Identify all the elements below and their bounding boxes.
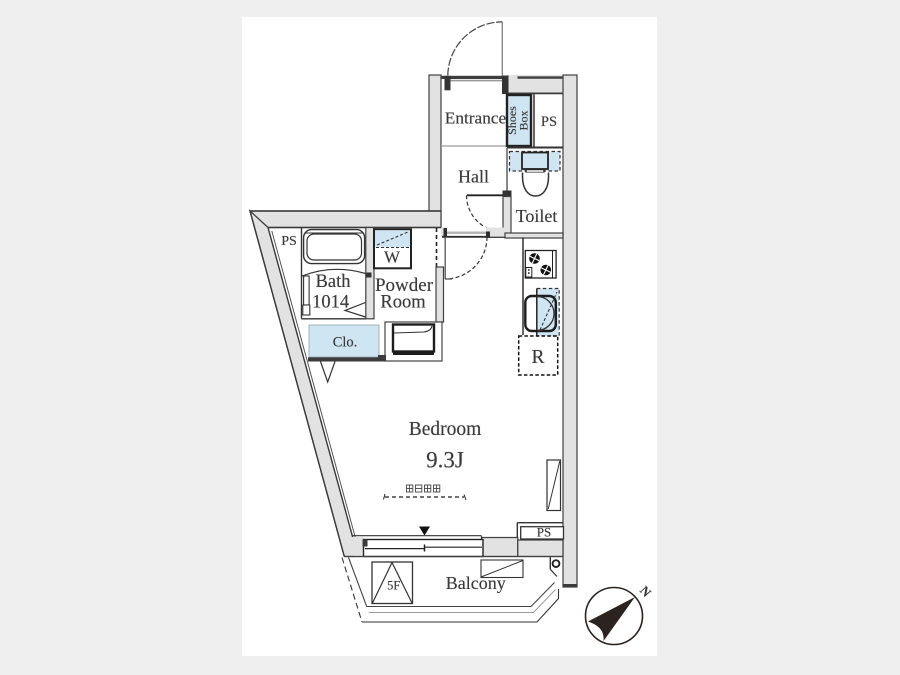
svg-text:Entrance: Entrance <box>445 109 507 128</box>
svg-text:Toilet: Toilet <box>516 206 558 226</box>
svg-text:PS: PS <box>541 114 557 130</box>
svg-text:Bath: Bath <box>316 272 351 292</box>
svg-text:Bedroom: Bedroom <box>409 419 482 440</box>
svg-text:Room: Room <box>380 293 426 313</box>
svg-text:1014: 1014 <box>312 292 349 312</box>
svg-text:Balcony: Balcony <box>446 573 506 593</box>
svg-text:Hall: Hall <box>458 166 489 186</box>
svg-text:W: W <box>384 248 401 267</box>
svg-text:Box: Box <box>517 110 531 130</box>
svg-text:R: R <box>531 347 544 368</box>
svg-text:Clo.: Clo. <box>333 335 358 351</box>
svg-text:9.3J: 9.3J <box>426 448 464 473</box>
svg-text:PS: PS <box>537 525 551 540</box>
svg-text:PS: PS <box>281 234 297 249</box>
svg-text:5F: 5F <box>387 579 400 593</box>
